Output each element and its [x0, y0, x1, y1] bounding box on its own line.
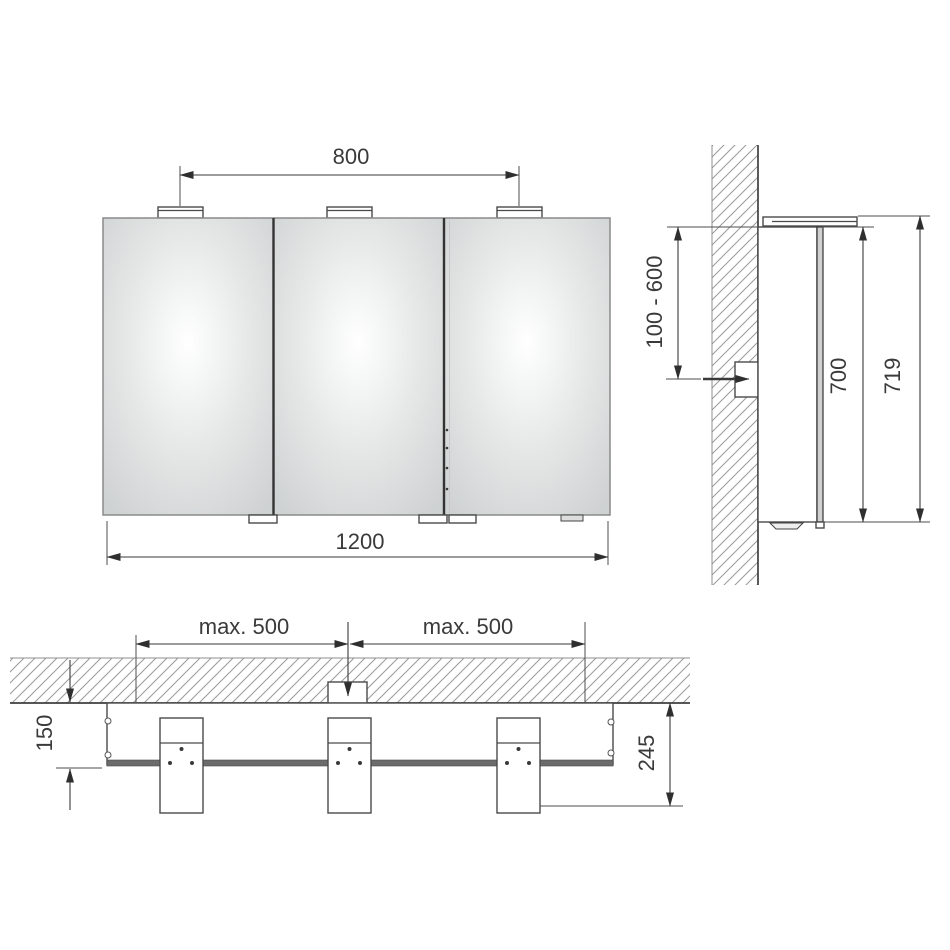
technical-drawing-canvas: 800 1200 [0, 0, 950, 950]
dim-max500-right-label: max. 500 [423, 614, 514, 639]
door-bottom-edge [816, 522, 824, 528]
mirror-door-left [103, 218, 273, 515]
dimension-total-width: 1200 [107, 521, 608, 565]
front-view: 800 1200 [103, 144, 610, 565]
dim-1200-label: 1200 [336, 529, 385, 554]
light-fixture-center [327, 207, 372, 218]
side-view: 100 - 600 700 719 [642, 145, 930, 585]
plan-view: max. 500 max. 500 150 245 [10, 614, 690, 813]
mirror-door-center [273, 218, 443, 515]
dim-700-label: 700 [826, 358, 851, 395]
dimension-max-spacing-left: max. 500 [136, 614, 348, 644]
door-handle [249, 515, 277, 523]
light-fixture-plan-right [497, 718, 540, 813]
dim-100-600-label: 100 - 600 [642, 256, 667, 349]
dimension-total-height: 719 [858, 216, 930, 522]
dim-245-label: 245 [634, 735, 659, 772]
dim-150-label: 150 [32, 715, 57, 752]
dimension-cabinet-height: 700 [822, 227, 930, 522]
light-fixture-left [158, 207, 203, 218]
door-handle [449, 515, 476, 523]
light-fixture-plan-center [328, 718, 371, 813]
dim-800-label: 800 [333, 144, 370, 169]
cabinet-side-body [758, 227, 817, 522]
mirror-door-right [443, 218, 610, 515]
dimension-max-spacing-right: max. 500 [350, 614, 585, 644]
dimension-light-spacing: 800 [180, 144, 519, 206]
mirror-door-side [817, 227, 823, 522]
dim-719-label: 719 [880, 358, 905, 395]
light-fixture-side [763, 217, 857, 226]
light-fixture-right [497, 207, 542, 218]
dimension-drawing-page: 800 1200 [0, 0, 950, 950]
door-handle-side [770, 523, 803, 529]
light-fixture-plan-left [160, 718, 203, 813]
dimension-outlet-range: 100 - 600 [642, 227, 678, 379]
dim-max500-left-label: max. 500 [199, 614, 290, 639]
door-handle [561, 515, 583, 521]
door-handle [419, 515, 447, 523]
